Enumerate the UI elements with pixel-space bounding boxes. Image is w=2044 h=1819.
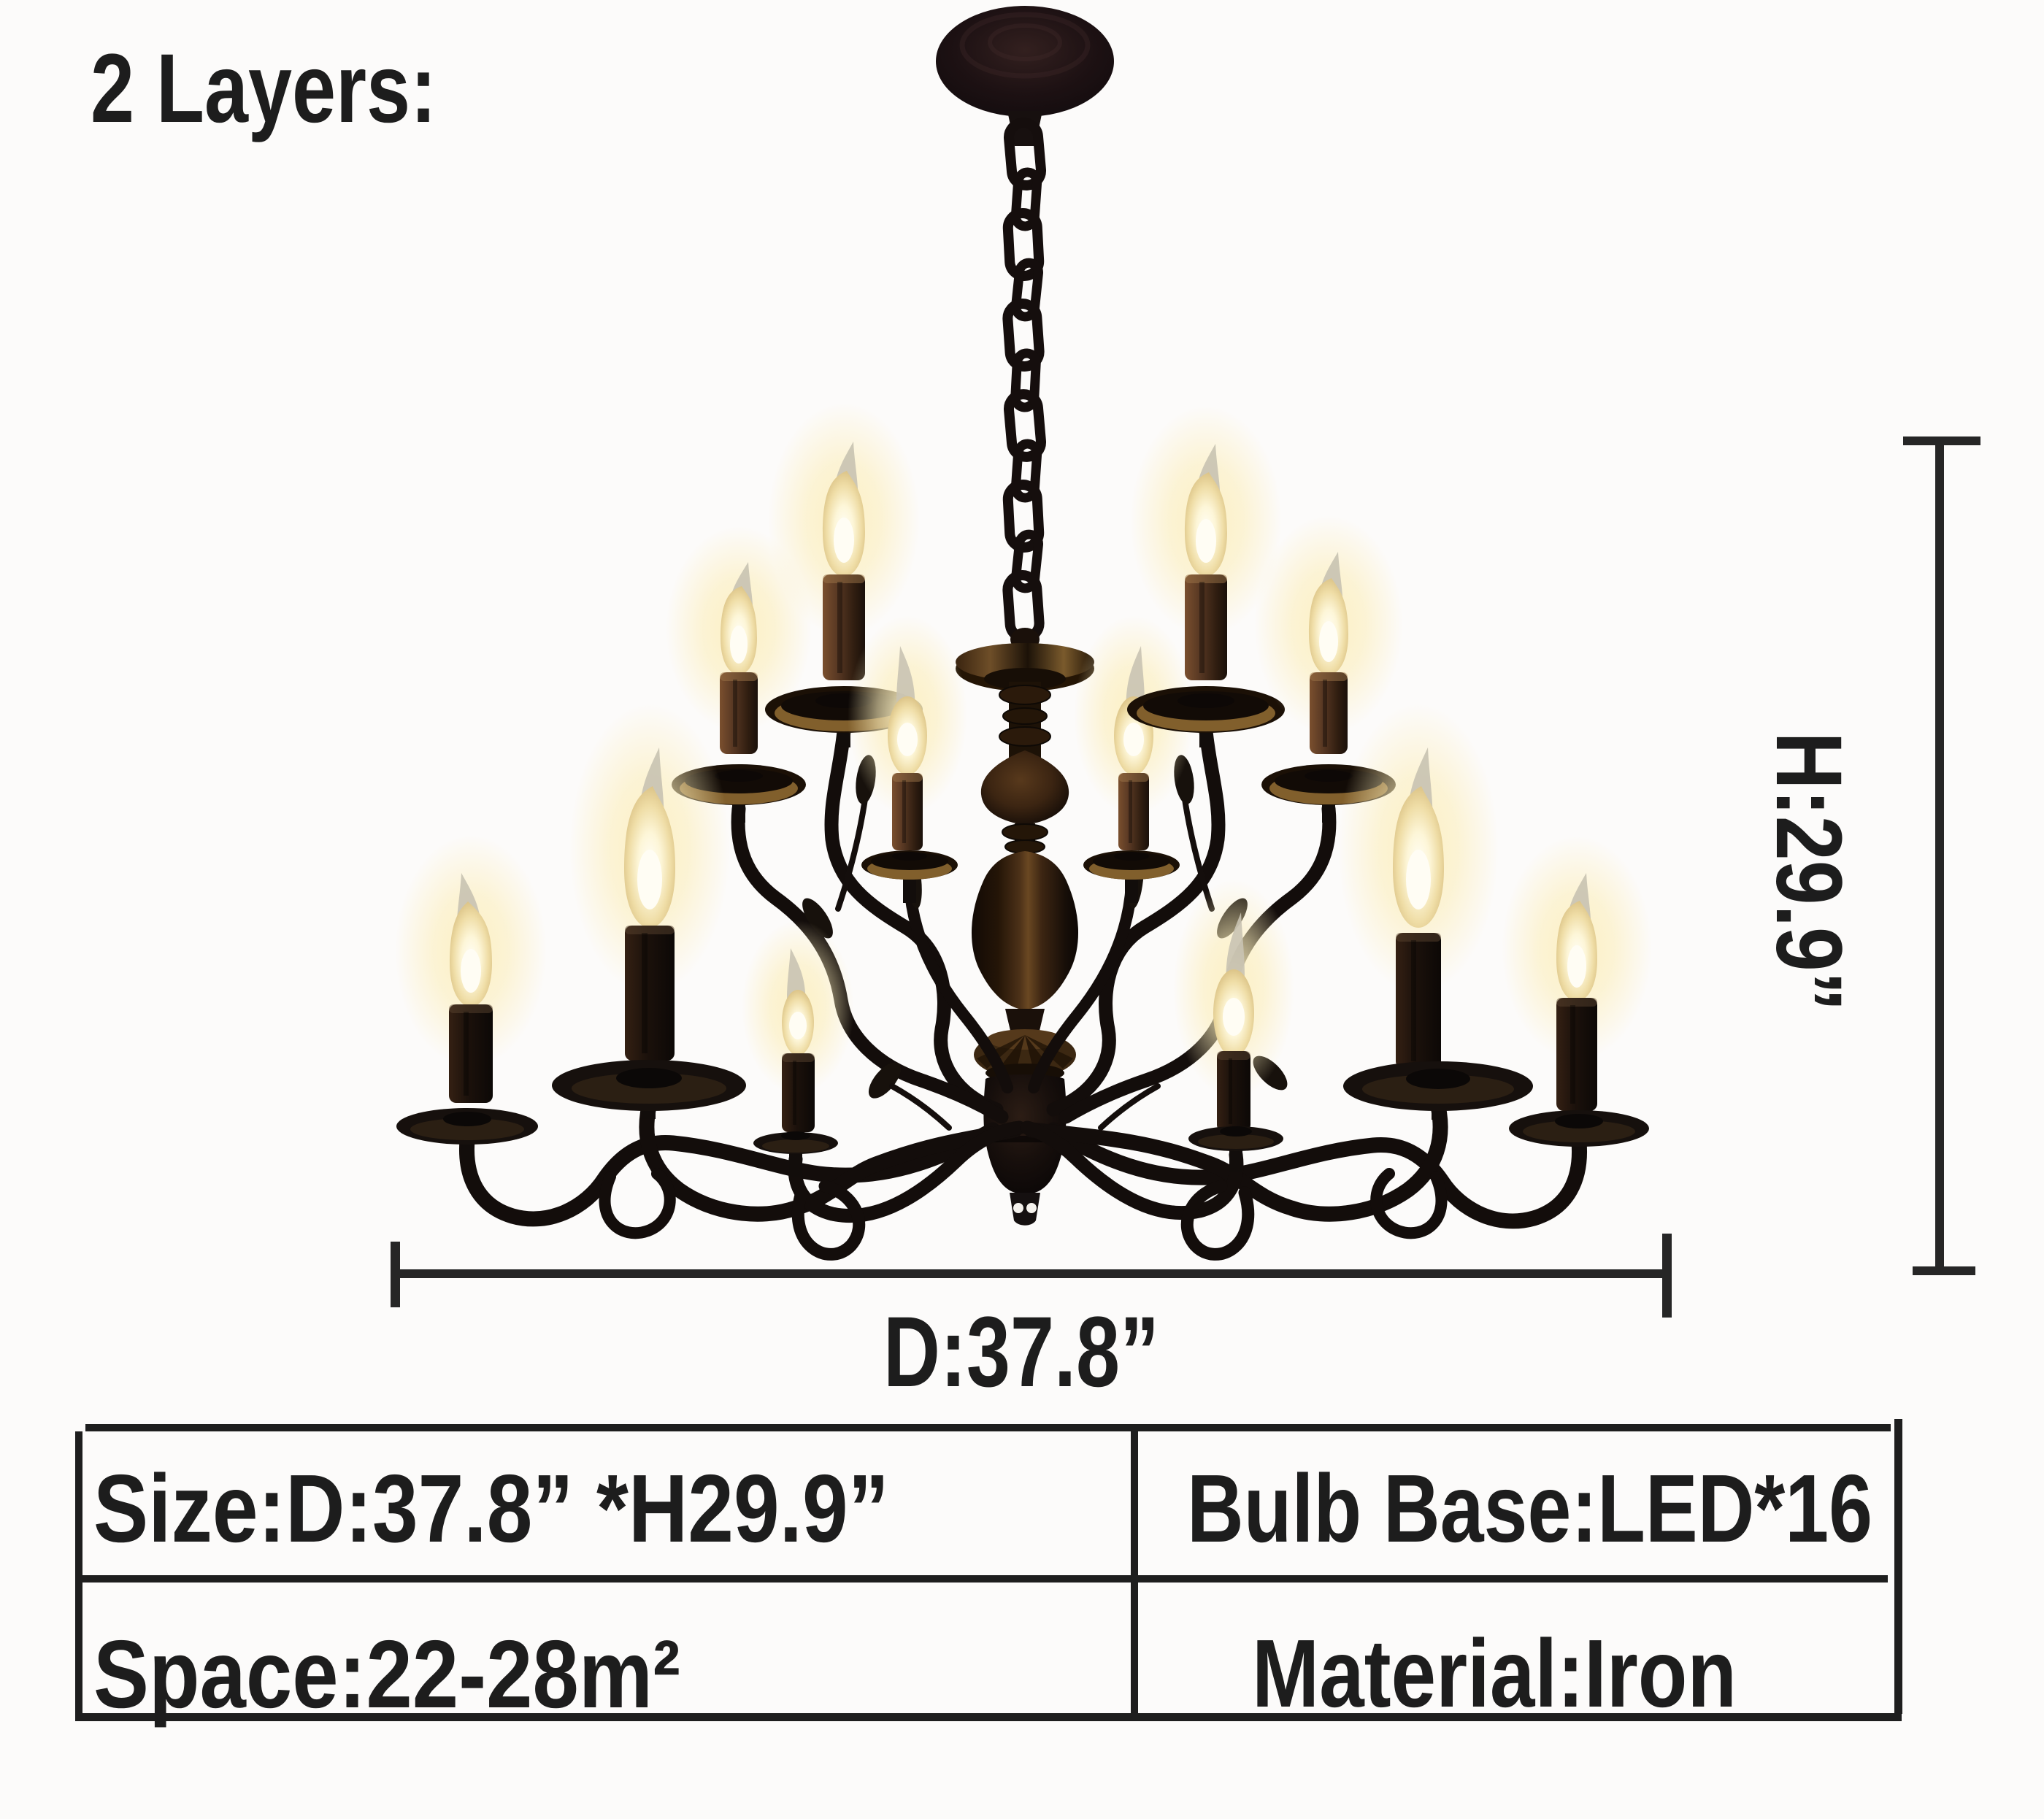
svg-text:Space:22-28m²: Space:22-28m² — [93, 1620, 680, 1728]
svg-text:D:37.8”: D:37.8” — [883, 1296, 1159, 1408]
svg-text:Bulb Base:LED*16: Bulb Base:LED*16 — [1187, 1455, 1872, 1562]
svg-text:2 Layers:: 2 Layers: — [91, 34, 437, 143]
svg-text:Size:D:37.8” *H29.9”: Size:D:37.8” *H29.9” — [93, 1455, 889, 1562]
svg-text:H:29.9”: H:29.9” — [1756, 732, 1861, 1012]
svg-text:Material:Iron: Material:Iron — [1252, 1620, 1737, 1727]
